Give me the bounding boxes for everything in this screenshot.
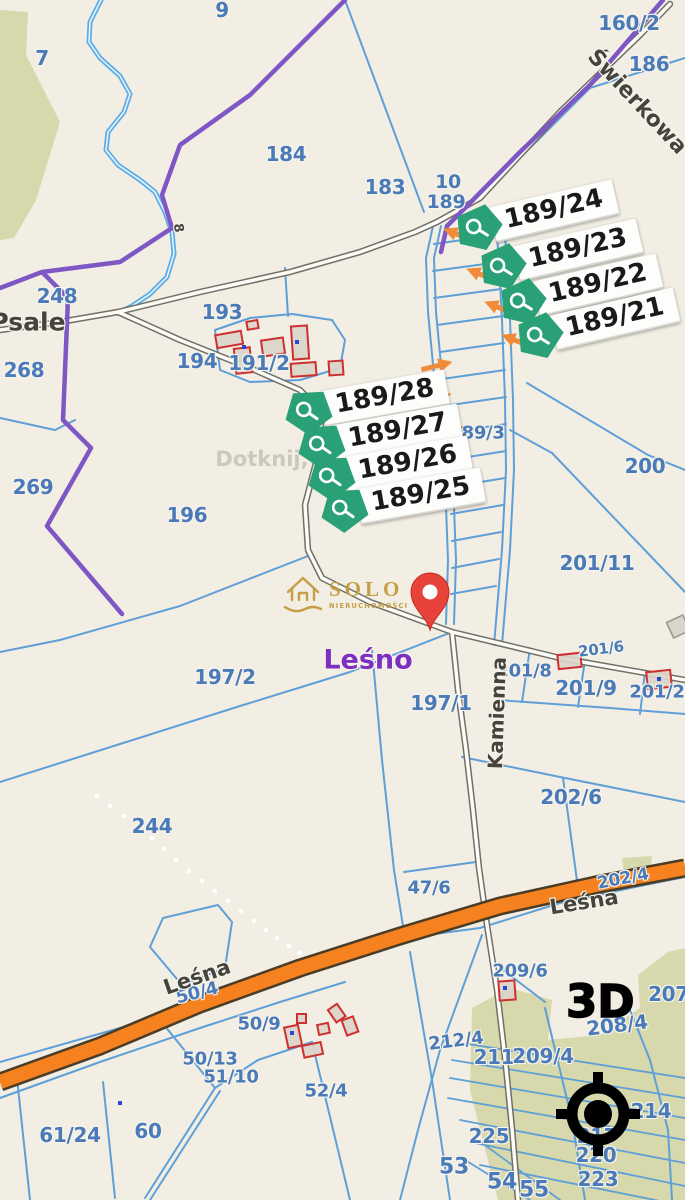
parcel-label: 201/11 — [559, 551, 634, 575]
parcel-label: 50/9 — [238, 1014, 281, 1035]
parcel-label: 196 — [167, 503, 208, 527]
parcel-label: 268 — [4, 358, 45, 382]
locate-target-icon[interactable] — [556, 1072, 640, 1156]
watermark-brand: SOLO — [329, 579, 408, 600]
parcel-label: 248 — [37, 284, 78, 308]
parcel-label: 51/10 — [203, 1067, 258, 1088]
parcel-label: 186 — [629, 52, 670, 76]
magnifier-icon — [328, 495, 358, 525]
parcel-label: 184 — [266, 142, 307, 166]
parcel-label: 54 — [487, 1170, 517, 1195]
house-in-hand-icon — [281, 571, 325, 617]
parcel-label: 53 — [439, 1155, 469, 1180]
solo-watermark: SOLO NIERUCHOMOŚCI — [281, 571, 408, 617]
dotted-path — [95, 794, 303, 956]
parcel-label: 52/4 — [305, 1081, 348, 1102]
parcel-label: 207/ — [648, 982, 685, 1006]
parcel-label: 193 — [202, 300, 243, 324]
magnifier-icon — [462, 213, 493, 244]
parcel-label: 7 — [35, 46, 49, 70]
street-label-kamienna: Kamienna — [483, 656, 511, 769]
parcel-label: 197/2 — [194, 665, 255, 689]
parcel-label: 201/9 — [555, 676, 616, 700]
watermark-subtitle: NIERUCHOMOŚCI — [329, 603, 408, 610]
parcel-label: 209/6 — [492, 961, 547, 982]
parcel-label: 244 — [132, 814, 173, 838]
parcel-label: 160/2 — [598, 11, 659, 35]
parcel-label: 225 — [469, 1124, 510, 1148]
parcel-label: 10 — [435, 171, 461, 193]
parcel-label: 200 — [625, 454, 666, 478]
map-hint-text: Dotknij, — [215, 447, 308, 471]
parcel-label: 60 — [134, 1119, 161, 1143]
location-pin-icon[interactable] — [405, 568, 455, 634]
parcel-label: 183 — [365, 175, 406, 199]
parcel-label: 191/2 — [228, 351, 289, 375]
parcel-label: 269 — [13, 475, 54, 499]
parcel-label: 9 — [215, 0, 229, 22]
parcel-label: 211 — [474, 1045, 515, 1069]
parcel-label: 47/6 — [408, 878, 451, 899]
parcel-label: 194 — [177, 349, 218, 373]
map-canvas[interactable]: SOLO NIERUCHOMOŚCI Dotknij, 9 7 184 183 … — [0, 0, 685, 1200]
parcel-label: 61/24 — [39, 1123, 100, 1147]
place-label-lesno: Leśno — [323, 645, 412, 676]
view-3d-button[interactable]: 3D — [566, 975, 635, 1028]
magnifier-icon — [486, 252, 517, 283]
magnifier-icon — [523, 321, 554, 352]
street-label-psale: Psale — [0, 308, 66, 337]
parcel-label: 197/1 — [410, 691, 471, 715]
parcel-label: 202/6 — [540, 785, 601, 809]
parcel-label: 223 — [578, 1167, 619, 1191]
parcel-label: 209/4 — [512, 1044, 573, 1068]
parcel-label: 201/2 — [629, 682, 684, 703]
parcel-label: 55 — [519, 1178, 549, 1200]
